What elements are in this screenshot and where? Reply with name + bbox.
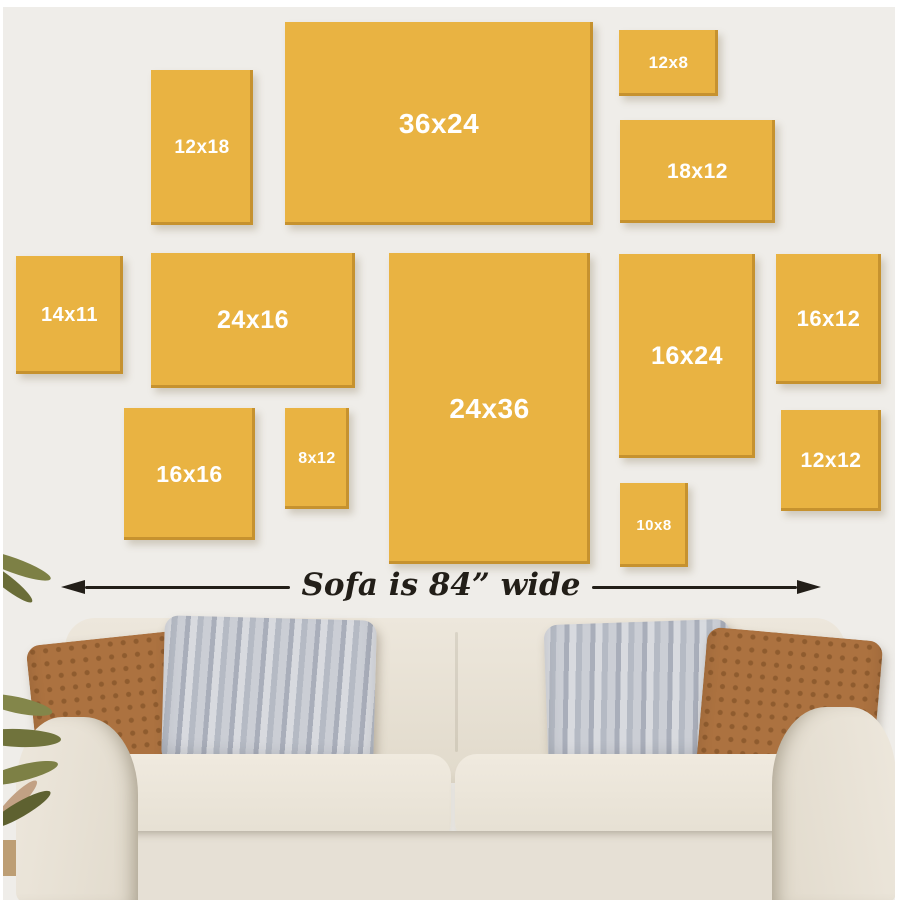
art-frame-12x8: 12x8 (619, 30, 718, 96)
wall-art-size-guide: 12x18 36x24 12x8 18x12 14x11 24x16 24x36… (0, 0, 900, 900)
frame-size-label: 10x8 (636, 517, 671, 534)
frame-size-label: 16x24 (651, 342, 723, 371)
sofa-arm-right (772, 707, 895, 900)
dimension-line-left (85, 586, 290, 589)
frame-size-label: 16x12 (797, 306, 861, 332)
sofa-width-caption: Sofa is 84” wide (290, 567, 593, 603)
sofa-base (49, 831, 869, 900)
sofa-width-dimension: Sofa is 84” wide (61, 565, 821, 609)
art-frame-16x16: 16x16 (124, 408, 255, 540)
art-frame-18x12: 18x12 (620, 120, 775, 223)
frame-size-label: 18x12 (667, 160, 728, 184)
art-frame-12x18: 12x18 (151, 70, 253, 225)
dimension-line-right (592, 586, 797, 589)
art-frame-8x12: 8x12 (285, 408, 349, 509)
frame-size-label: 12x18 (174, 137, 229, 159)
frame-size-label: 14x11 (41, 304, 98, 327)
art-frame-16x24: 16x24 (619, 254, 755, 458)
frame-size-label: 8x12 (298, 450, 336, 468)
art-frame-10x8: 10x8 (620, 483, 688, 567)
frame-size-label: 36x24 (399, 108, 479, 140)
frame-size-label: 12x12 (801, 449, 862, 473)
art-frame-36x24: 36x24 (285, 22, 593, 225)
wall-background: 12x18 36x24 12x8 18x12 14x11 24x16 24x36… (3, 7, 895, 900)
art-frame-24x36: 24x36 (389, 253, 590, 564)
art-frame-16x12: 16x12 (776, 254, 881, 384)
frame-size-label: 24x16 (217, 306, 289, 335)
pillow-gray-left (161, 615, 377, 768)
art-frame-12x12: 12x12 (781, 410, 881, 511)
art-frame-14x11: 14x11 (16, 256, 123, 374)
frame-size-label: 12x8 (649, 53, 689, 73)
art-frame-24x16: 24x16 (151, 253, 355, 388)
arrow-right-icon (797, 580, 821, 594)
frame-size-label: 16x16 (156, 461, 222, 488)
sofa-back-seam (455, 632, 458, 752)
arrow-left-icon (61, 580, 85, 594)
frame-size-label: 24x36 (449, 393, 529, 425)
